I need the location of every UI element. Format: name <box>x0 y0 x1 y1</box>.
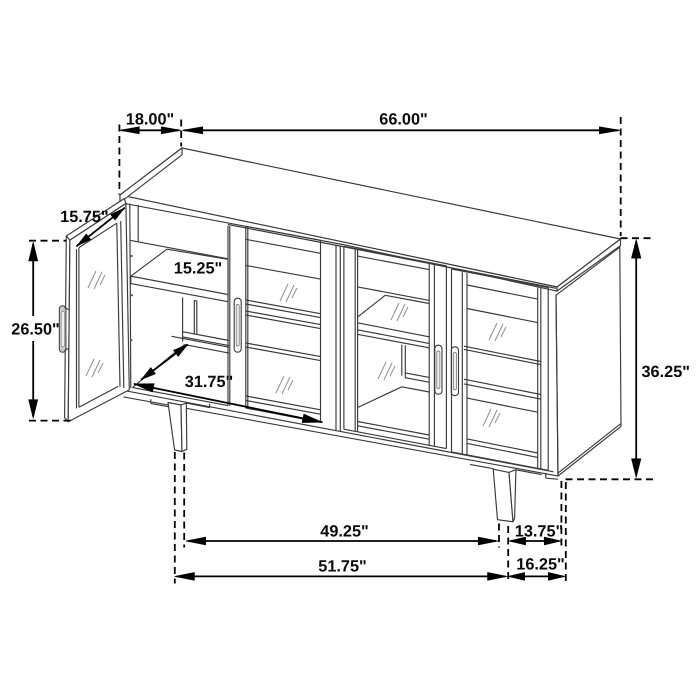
svg-text:49.25": 49.25" <box>320 523 368 541</box>
svg-text:66.00": 66.00" <box>379 111 427 129</box>
svg-text:13.75": 13.75" <box>515 523 563 541</box>
svg-text:15.75": 15.75" <box>60 208 108 226</box>
svg-text:26.50": 26.50" <box>11 321 59 339</box>
svg-text:18.00": 18.00" <box>126 111 174 129</box>
svg-text:36.25": 36.25" <box>642 363 690 381</box>
svg-text:51.75": 51.75" <box>318 558 366 576</box>
svg-text:31.75": 31.75" <box>185 373 233 391</box>
svg-text:15.25": 15.25" <box>174 260 222 278</box>
svg-text:16.25": 16.25" <box>516 556 564 574</box>
